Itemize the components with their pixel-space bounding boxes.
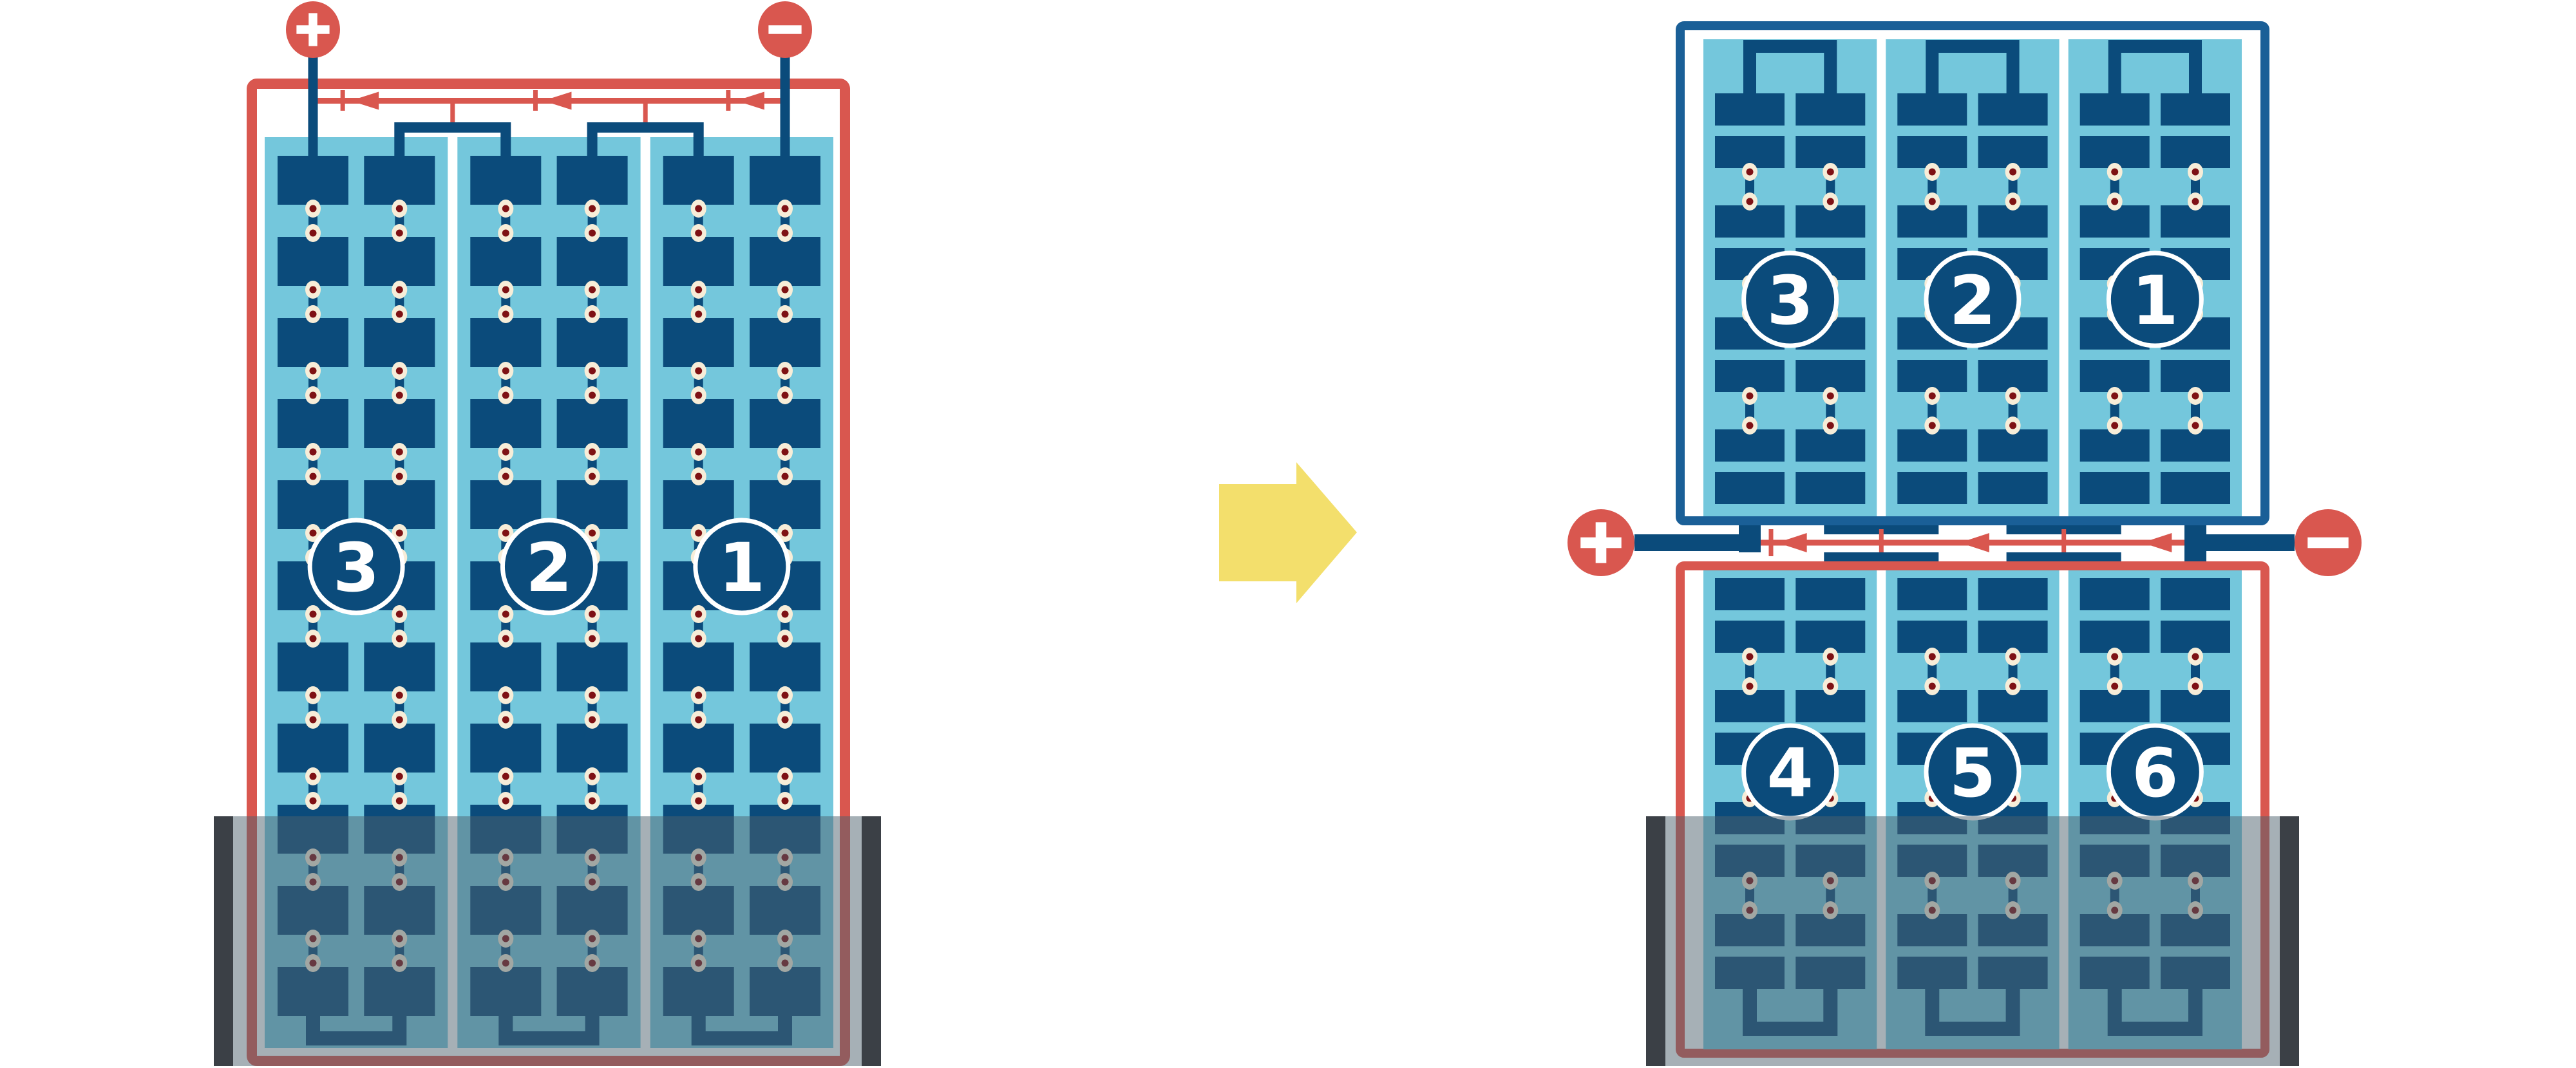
rivet-dot (2009, 198, 2016, 205)
rivet-dot (310, 368, 317, 375)
flow-tick (1769, 529, 1774, 556)
rivet-dot (310, 473, 317, 480)
battery-plate (557, 237, 628, 286)
rivet-dot (695, 611, 702, 618)
rivet-dot (589, 717, 596, 724)
top-cell-row: 321 (1680, 26, 2265, 521)
rivet-dot (1827, 683, 1834, 690)
battery-plate (2080, 93, 2150, 126)
battery-plate (2161, 578, 2230, 610)
rivet-dot (2111, 198, 2118, 205)
flow-tick (2061, 529, 2066, 556)
rivet-dot (310, 611, 317, 618)
rivet-dot (502, 368, 509, 375)
battery-plate (1715, 578, 1785, 610)
rivet-dot (782, 286, 789, 294)
battery-plate (364, 399, 435, 448)
flow-arrow-icon (1960, 533, 1989, 552)
cell-label: 2 (502, 520, 595, 613)
battery-plate (364, 724, 435, 773)
battery-plate (1795, 578, 1865, 610)
rivet-dot (1827, 422, 1834, 429)
battery-plate (1978, 578, 2048, 610)
flow-tick (726, 90, 730, 111)
cell-label-number: 1 (719, 529, 765, 607)
battery-plate (663, 724, 734, 773)
battery-case-overlay (214, 816, 881, 1066)
flow-arrow-icon (1777, 533, 1807, 552)
battery-plate (557, 642, 628, 691)
battery-plate (278, 642, 348, 691)
rivet-dot (782, 230, 789, 237)
rivet-dot (589, 611, 596, 618)
battery-plate (470, 318, 541, 367)
flow-arrow-icon (350, 92, 379, 110)
negative-terminal (758, 1, 812, 58)
rivet-dot (695, 368, 702, 375)
battery-cells-diagram: 321 321456 (0, 0, 2576, 1068)
rivet-dot (396, 392, 403, 399)
battery-plate (1795, 93, 1865, 126)
battery-plate (557, 156, 628, 205)
rivet-dot (2111, 422, 2118, 429)
battery-plate (1897, 578, 1967, 610)
rivet-dot (782, 473, 789, 480)
rivet-dot (1747, 393, 1754, 400)
rivet-dot (2192, 393, 2199, 400)
battery-plate (557, 318, 628, 367)
rivet-dot (310, 392, 317, 399)
rivet-dot (396, 530, 403, 537)
cell-label: 1 (696, 520, 788, 613)
battery-plate (663, 237, 734, 286)
rivet-dot (502, 205, 509, 212)
rivet-dot (695, 205, 702, 212)
rivet-dot (2192, 422, 2199, 429)
battery-plate (2161, 472, 2230, 504)
rivet-dot (589, 311, 596, 318)
battery-plate (663, 399, 734, 448)
rivet-dot (396, 635, 403, 642)
cell-label: 4 (1744, 726, 1837, 818)
rivet-dot (782, 611, 789, 618)
rivet-dot (2009, 683, 2016, 690)
rivet-dot (396, 473, 403, 480)
rivet-dot (1827, 393, 1834, 400)
case-edge-bar (862, 816, 881, 1066)
rivet-dot (782, 717, 789, 724)
battery-plate (750, 318, 820, 367)
rivet-dot (310, 205, 317, 212)
rivet-dot (502, 230, 509, 237)
rivet-dot (695, 392, 702, 399)
rivet-dot (2192, 653, 2199, 660)
cell-label-number: 2 (526, 529, 572, 607)
rivet-dot (310, 798, 317, 805)
rivet-dot (396, 311, 403, 318)
battery-plate (364, 318, 435, 367)
flow-tick (1879, 529, 1884, 556)
negative-bus-bar (2195, 534, 2295, 551)
battery-plate (364, 237, 435, 286)
rivet-dot (1929, 653, 1936, 660)
battery-plate (750, 642, 820, 691)
cell-label: 3 (310, 520, 402, 613)
rivet-dot (502, 635, 509, 642)
rivet-dot (396, 230, 403, 237)
battery-plate (470, 642, 541, 691)
rivet-dot (1747, 683, 1754, 690)
rivet-dot (1929, 683, 1936, 690)
flow-arrow-icon (736, 92, 764, 110)
cell-label: 2 (1926, 253, 2019, 346)
rivet-dot (1827, 653, 1834, 660)
battery-plate (663, 318, 734, 367)
rivet-dot (310, 635, 317, 642)
battery-plate (750, 724, 820, 773)
rivet-dot (2192, 683, 2199, 690)
rivet-dot (1929, 198, 1936, 205)
rivet-dot (695, 473, 702, 480)
rivet-dot (589, 473, 596, 480)
rivet-dot (310, 773, 317, 780)
battery-plate (278, 318, 348, 367)
battery-plate (2161, 93, 2230, 126)
battery-plate (1897, 472, 1967, 504)
cell-label-number: 3 (1766, 261, 1813, 340)
rivet-dot (1747, 169, 1754, 176)
battery-plate (557, 399, 628, 448)
left-battery-3-cell: 321 (214, 1, 881, 1066)
minus-icon (768, 25, 801, 33)
rivet-dot (589, 798, 596, 805)
negative-terminal-post (781, 54, 790, 164)
rivet-dot (2192, 198, 2199, 205)
battery-plate (470, 399, 541, 448)
rivet-dot (782, 530, 789, 537)
battery-plate (1715, 472, 1785, 504)
rivet-dot (695, 717, 702, 724)
rivet-dot (2009, 393, 2016, 400)
rivet-dot (396, 773, 403, 780)
rivet-dot (695, 773, 702, 780)
flow-drop-line (643, 102, 648, 124)
rivet-dot (589, 286, 596, 294)
positive-terminal (1567, 509, 1634, 576)
cell-label-number: 6 (2132, 734, 2178, 812)
rivet-dot (1929, 169, 1936, 176)
rivet-dot (695, 230, 702, 237)
cell-label-number: 5 (1949, 734, 1996, 812)
battery-plate (750, 399, 820, 448)
rivet-dot (589, 230, 596, 237)
battery-plate (470, 724, 541, 773)
rivet-dot (502, 311, 509, 318)
rivet-dot (310, 717, 317, 724)
rivet-dot (695, 311, 702, 318)
rivet-dot (502, 392, 509, 399)
rivet-dot (1929, 393, 1936, 400)
rivet-dot (396, 798, 403, 805)
rivet-dot (396, 611, 403, 618)
battery-plate (557, 724, 628, 773)
cell-label: 1 (2108, 253, 2201, 346)
rivet-dot (782, 205, 789, 212)
rivet-dot (695, 798, 702, 805)
rivet-dot (502, 449, 509, 456)
rivet-dot (502, 717, 509, 724)
battery-plate (2080, 472, 2150, 504)
right-battery-6-cell: 321456 (1567, 26, 2362, 1066)
case-edge-bar (1646, 816, 1665, 1066)
rivet-dot (502, 773, 509, 780)
rivet-dot (502, 286, 509, 294)
flow-arrow-icon (2142, 533, 2172, 552)
rivet-dot (695, 530, 702, 537)
battery-plate (1978, 472, 2048, 504)
battery-plate (364, 156, 435, 205)
battery-case-overlay (1646, 816, 2299, 1066)
plus-icon (1596, 522, 1607, 563)
battery-plate (1715, 93, 1785, 126)
rivet-dot (1747, 653, 1754, 660)
rivet-dot (589, 635, 596, 642)
battery-plate (278, 724, 348, 773)
rivet-dot (2111, 169, 2118, 176)
battery-plate (2080, 578, 2150, 610)
cell-label-number: 2 (1949, 261, 1996, 340)
rivet-dot (396, 205, 403, 212)
rivet-dot (502, 692, 509, 699)
rivet-dot (502, 473, 509, 480)
transition-arrow (1219, 462, 1357, 603)
rivet-dot (782, 392, 789, 399)
rivet-dot (782, 449, 789, 456)
flow-tick (341, 90, 345, 111)
minus-icon (2307, 538, 2348, 548)
current-flow-line (313, 90, 785, 124)
rivet-dot (2111, 393, 2118, 400)
transform-arrow-icon (1219, 462, 1357, 603)
cell-label: 6 (2108, 726, 2201, 818)
rivet-dot (782, 635, 789, 642)
rivet-dot (310, 449, 317, 456)
case-edge-bar (2280, 816, 2299, 1066)
rivet-dot (589, 392, 596, 399)
flow-tick (533, 90, 538, 111)
rivet-dot (782, 311, 789, 318)
rivet-dot (310, 530, 317, 537)
positive-bus-bar (1634, 534, 1750, 551)
rivet-dot (2111, 653, 2118, 660)
rivet-dot (1827, 169, 1834, 176)
rivet-dot (310, 286, 317, 294)
rivet-dot (2192, 169, 2199, 176)
rivet-dot (782, 798, 789, 805)
cell-label: 3 (1744, 253, 1837, 346)
cell-label-number: 3 (333, 529, 379, 607)
battery-plate (1795, 472, 1865, 504)
rivet-dot (589, 449, 596, 456)
battery-plate (470, 156, 541, 205)
rivet-dot (396, 286, 403, 294)
positive-terminal (286, 1, 340, 58)
rivet-dot (1747, 422, 1754, 429)
rivet-dot (502, 611, 509, 618)
cell-label-number: 4 (1766, 734, 1813, 812)
battery-plate (278, 399, 348, 448)
rivet-dot (1827, 198, 1834, 205)
flow-arrow-icon (543, 92, 571, 110)
rivet-dot (695, 449, 702, 456)
rivet-dot (782, 773, 789, 780)
battery-plate (364, 642, 435, 691)
rivet-dot (589, 205, 596, 212)
rivet-dot (695, 635, 702, 642)
battery-plate (470, 237, 541, 286)
rivet-dot (310, 230, 317, 237)
rivet-dot (2009, 169, 2016, 176)
positive-terminal-post (308, 54, 318, 164)
rivet-dot (782, 692, 789, 699)
inter-cell-bridge (1824, 552, 1938, 561)
flow-drop-line (450, 102, 455, 124)
rivet-dot (310, 692, 317, 699)
rivet-dot (589, 368, 596, 375)
rivet-dot (396, 717, 403, 724)
rivet-dot (310, 311, 317, 318)
rivet-dot (1747, 198, 1754, 205)
case-edge-bar (214, 816, 233, 1066)
rivet-dot (2009, 422, 2016, 429)
battery-plate (750, 237, 820, 286)
rivet-dot (695, 286, 702, 294)
cell-label-number: 1 (2132, 261, 2178, 340)
rivet-dot (396, 692, 403, 699)
rivet-dot (502, 798, 509, 805)
rivet-dot (782, 368, 789, 375)
rivet-dot (396, 368, 403, 375)
rivet-dot (1929, 422, 1936, 429)
battery-plate (278, 237, 348, 286)
rivet-dot (396, 449, 403, 456)
cell-label: 5 (1926, 726, 2019, 818)
rivet-dot (589, 773, 596, 780)
rivet-dot (589, 692, 596, 699)
rivet-dot (695, 692, 702, 699)
battery-plate (1897, 93, 1967, 126)
rivet-dot (589, 530, 596, 537)
battery-plate (1978, 93, 2048, 126)
battery-plate (663, 156, 734, 205)
inter-cell-bridge (2007, 552, 2121, 561)
negative-terminal (2295, 509, 2362, 576)
battery-plate (663, 642, 734, 691)
rivet-dot (2111, 683, 2118, 690)
rivet-dot (2009, 653, 2016, 660)
rivet-dot (502, 530, 509, 537)
plus-icon (308, 13, 317, 46)
